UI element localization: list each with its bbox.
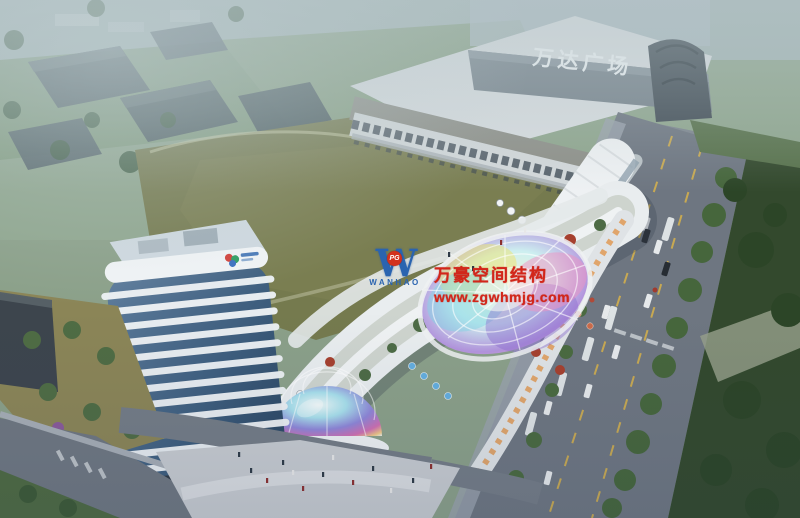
haze-overlay <box>0 0 800 518</box>
aerial-rendering: 万达广场 <box>0 0 800 518</box>
scene-canvas: 万达广场 <box>0 0 800 518</box>
